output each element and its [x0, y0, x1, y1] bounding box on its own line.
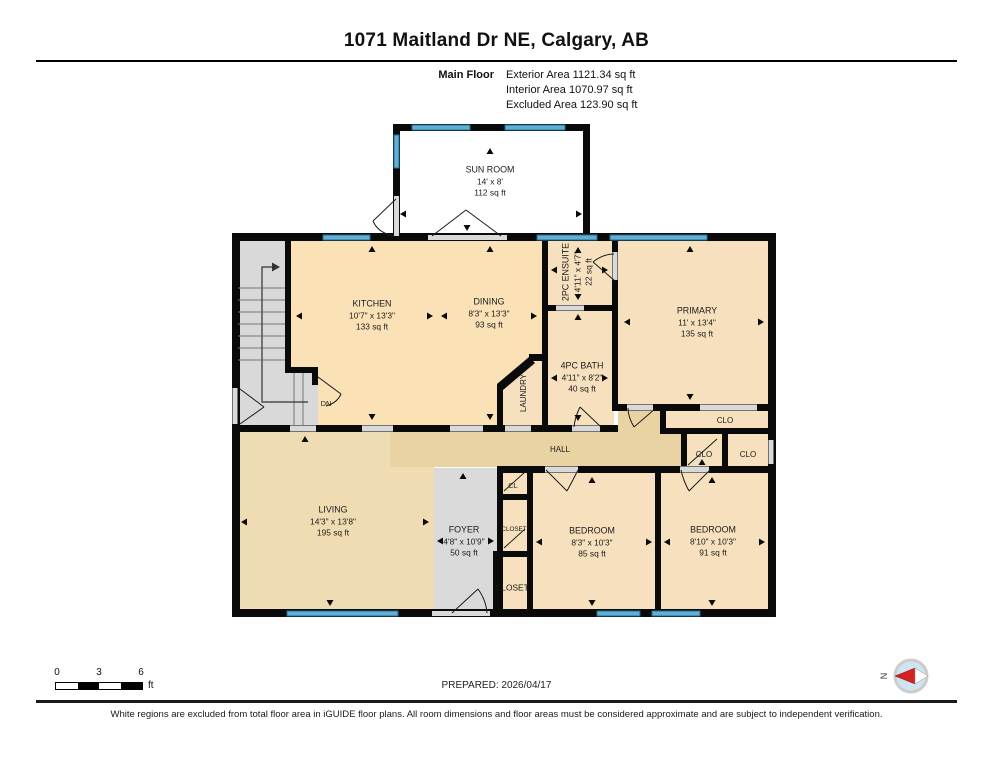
- room-dims: 11' x 13'4": [677, 317, 717, 328]
- room-name: 2PC ENSUITE: [560, 243, 572, 301]
- room-area: 50 sq ft: [443, 547, 484, 558]
- disclaimer-text: White regions are excluded from total fl…: [0, 709, 993, 720]
- room-dims: 14' x 8': [466, 176, 515, 187]
- room-name: DINING: [468, 296, 509, 308]
- room-dims: 10'7" x 13'3": [349, 310, 395, 321]
- room-label-bedroom1: BEDROOM 8'3" x 10'3" 85 sq ft: [569, 525, 615, 558]
- floor-plan-page: 1071 Maitland Dr NE, Calgary, AB Main Fl…: [0, 0, 993, 768]
- closet-label-front: CLOSET: [495, 583, 529, 594]
- room-label-laundry: LAUNDRY: [519, 374, 529, 412]
- room-area: 22 sq ft: [583, 243, 594, 301]
- closet-label-primary: CLO: [717, 416, 733, 426]
- room-name: 4PC BATH: [561, 360, 604, 372]
- footer-divider: [36, 700, 957, 703]
- room-dims: 8'10" x 10'3": [690, 536, 736, 547]
- room-dims: 8'3" x 10'3": [569, 537, 615, 548]
- room-label-living: LIVING 14'3" x 13'8" 195 sq ft: [310, 504, 356, 537]
- room-label-primary: PRIMARY 11' x 13'4" 135 sq ft: [677, 305, 717, 338]
- scale-tick-3: 3: [96, 667, 102, 678]
- room-dims: 4'11" x 8'2": [561, 372, 604, 383]
- room-dims: 4'8" x 10'9": [443, 536, 484, 547]
- room-area: 135 sq ft: [677, 328, 717, 339]
- room-label-kitchen: KITCHEN 10'7" x 13'3" 133 sq ft: [349, 298, 395, 331]
- room-area: 85 sq ft: [569, 548, 615, 559]
- closet-label-mid: CLOSET: [501, 526, 526, 534]
- compass-north-label: N: [879, 673, 889, 680]
- floor-plan-canvas: [0, 0, 993, 768]
- room-name: SUN ROOM: [466, 164, 515, 176]
- room-name: KITCHEN: [349, 298, 395, 310]
- room-area: 195 sq ft: [310, 527, 356, 538]
- closet-label-cl: CL: [508, 481, 517, 491]
- scale-tick-0: 0: [54, 667, 60, 678]
- room-dims: 8'3" x 13'3": [468, 308, 509, 319]
- room-label-hall: HALL: [550, 445, 570, 455]
- room-area: 93 sq ft: [468, 319, 509, 330]
- room-label-dining: DINING 8'3" x 13'3" 93 sq ft: [468, 296, 509, 329]
- room-label-foyer: FOYER 4'8" x 10'9" 50 sq ft: [443, 524, 484, 557]
- room-area: 91 sq ft: [690, 547, 736, 558]
- room-name: HALL: [550, 445, 570, 455]
- room-area: 40 sq ft: [561, 383, 604, 394]
- room-label-bedroom2: BEDROOM 8'10" x 10'3" 91 sq ft: [690, 524, 736, 557]
- room-name: LAUNDRY: [519, 374, 529, 412]
- room-dims: 4'11" x 4'7": [572, 243, 583, 301]
- room-area: 112 sq ft: [466, 187, 515, 198]
- prepared-date: PREPARED: 2026/04/17: [0, 680, 993, 691]
- stairs-dn-label: DN: [321, 399, 332, 409]
- scale-tick-6: 6: [138, 667, 144, 678]
- room-name: PRIMARY: [677, 305, 717, 317]
- room-dims: 14'3" x 13'8": [310, 516, 356, 527]
- room-area: 133 sq ft: [349, 321, 395, 332]
- closet-label-hall-2: CLO: [740, 450, 756, 460]
- closet-label-hall-1: CLO: [696, 450, 712, 460]
- room-name: LIVING: [310, 504, 356, 516]
- room-name: BEDROOM: [569, 525, 615, 537]
- room-name: FOYER: [443, 524, 484, 536]
- room-name: BEDROOM: [690, 524, 736, 536]
- room-label-ensuite: 2PC ENSUITE 4'11" x 4'7" 22 sq ft: [560, 243, 593, 301]
- room-label-bath: 4PC BATH 4'11" x 8'2" 40 sq ft: [561, 360, 604, 393]
- room-label-sun-room: SUN ROOM 14' x 8' 112 sq ft: [466, 164, 515, 197]
